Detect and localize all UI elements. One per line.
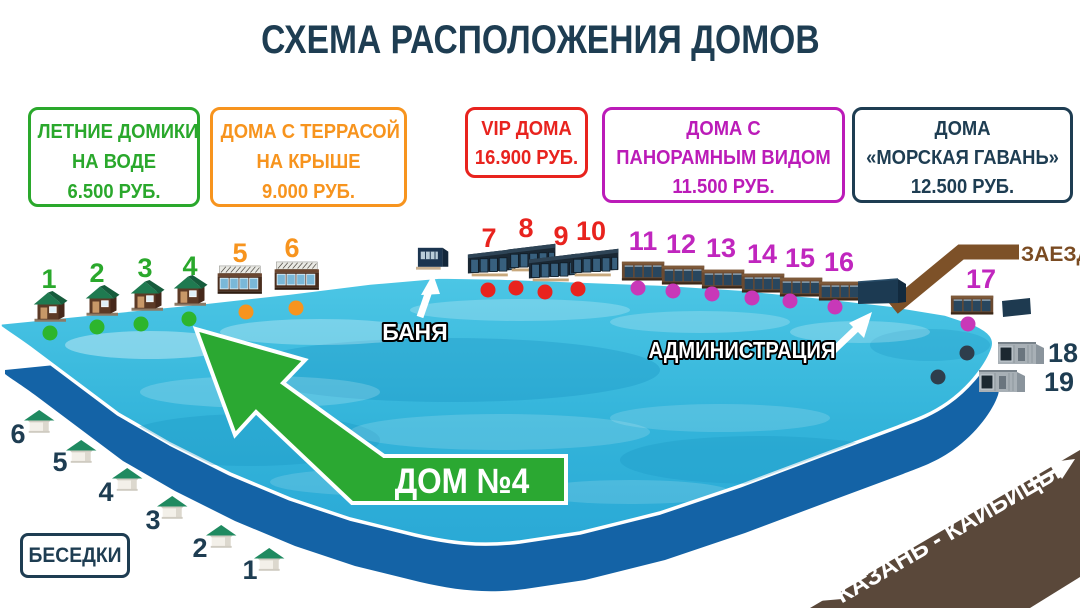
- legend-line: ДОМА С: [614, 115, 832, 144]
- legend-line: ПАНОРАМНЫМ ВИДОМ: [614, 144, 832, 173]
- legend-line: НА ВОДЕ: [38, 147, 191, 177]
- legend-price: 16.900 РУБ.: [473, 144, 581, 173]
- gazebo-4: [112, 468, 142, 491]
- gazebo-1: [254, 548, 284, 571]
- legend-line: VIP ДОМА: [473, 115, 581, 144]
- house-16-panoramic: [819, 282, 861, 301]
- legend-price: 6.500 РУБ.: [38, 177, 191, 207]
- house-5-terrace: [218, 266, 262, 294]
- house-3-summer-cabin: [131, 280, 165, 311]
- gazebos-label: БЕСЕДКИ: [27, 536, 123, 575]
- administration-building: [858, 279, 906, 304]
- gazebos-label-box: БЕСЕДКИ: [20, 533, 130, 578]
- house-number-19: 19: [1044, 367, 1074, 397]
- legend-price: 9.000 РУБ.: [221, 177, 397, 207]
- house-18-container: [998, 342, 1044, 364]
- administration-label: АДМИНИСТРАЦИЯ: [649, 337, 836, 364]
- gazebo-6: [24, 410, 54, 433]
- house-number-13: 13: [706, 233, 736, 263]
- legend-price: 11.500 РУБ.: [614, 173, 832, 202]
- house-6-terrace: [275, 262, 319, 290]
- house-number-6: 6: [284, 233, 299, 263]
- legend-box-harbor-houses: ДОМА «МОРСКАЯ ГАВАНЬ» 12.500 РУБ.: [852, 107, 1073, 203]
- house-10-vip: [571, 249, 619, 277]
- house-2-summer-cabin: [86, 285, 120, 316]
- gazebo-number-6: 6: [10, 419, 25, 449]
- house-number-2: 2: [89, 258, 104, 288]
- gazebo-2: [206, 525, 236, 548]
- gazebo-3: [157, 496, 187, 519]
- gazebo-number-4: 4: [98, 477, 113, 507]
- gazebo-number-3: 3: [145, 505, 160, 535]
- gazebo-number-2: 2: [192, 533, 207, 563]
- legend-line: ЛЕТНИЕ ДОМИКИ: [38, 117, 191, 147]
- bathhouse-building: [416, 248, 448, 270]
- house-number-18: 18: [1048, 338, 1078, 368]
- gazebo-5: [66, 440, 96, 463]
- house-number-10: 10: [576, 216, 606, 246]
- legend-box-panoramic-houses: ДОМА С ПАНОРАМНЫМ ВИДОМ 11.500 РУБ.: [602, 107, 845, 203]
- house-number-5: 5: [232, 238, 247, 268]
- gazebo-number-1: 1: [242, 555, 257, 585]
- house-14-panoramic: [742, 274, 784, 293]
- house-number-14: 14: [747, 239, 777, 269]
- house-number-15: 15: [785, 243, 815, 273]
- bathhouse-label: БАНЯ: [382, 319, 447, 345]
- resort-map: ЗАЕЗД ДОРОГА КАЗАНЬ - КАЙБИЦЫ ДОМ №4: [0, 0, 1080, 608]
- legend-line: НА КРЫШЕ: [221, 147, 397, 177]
- house-number-1: 1: [41, 264, 56, 294]
- legend-box-vip-houses: VIP ДОМА 16.900 РУБ.: [465, 107, 588, 178]
- dark-panel-building: [1002, 298, 1031, 317]
- house-1-summer-cabin: [34, 291, 68, 322]
- legend-box-summer-houses: ЛЕТНИЕ ДОМИКИ НА ВОДЕ 6.500 РУБ.: [28, 107, 200, 207]
- house-number-9: 9: [553, 221, 568, 251]
- gazebo-number-5: 5: [52, 447, 67, 477]
- house4-callout-label: ДОМ №4: [395, 463, 530, 502]
- house-number-7: 7: [481, 223, 496, 253]
- house-number-16: 16: [824, 247, 854, 277]
- page-title: СХЕМА РАСПОЛОЖЕНИЯ ДОМОВ: [0, 18, 1080, 63]
- house-number-8: 8: [518, 213, 533, 243]
- house-15-panoramic: [780, 278, 822, 297]
- house-number-4: 4: [182, 251, 197, 281]
- house-17-panoramic: [951, 296, 993, 315]
- legend-price: 12.500 РУБ.: [864, 173, 1062, 202]
- house-number-3: 3: [137, 253, 152, 283]
- house-number-12: 12: [666, 229, 696, 259]
- legend-line: «МОРСКАЯ ГАВАНЬ»: [864, 144, 1062, 173]
- house-19-container: [979, 370, 1025, 392]
- house-number-17: 17: [966, 264, 996, 294]
- house-11-panoramic: [622, 262, 664, 281]
- house-12-panoramic: [662, 266, 704, 285]
- entrance-label: ЗАЕЗД: [1021, 243, 1080, 266]
- house-number-11: 11: [629, 226, 658, 256]
- legend-line: ДОМА С ТЕРРАСОЙ: [221, 117, 397, 147]
- legend-box-terrace-houses: ДОМА С ТЕРРАСОЙ НА КРЫШЕ 9.000 РУБ.: [210, 107, 407, 207]
- house-13-panoramic: [702, 270, 744, 289]
- legend-line: ДОМА: [864, 115, 1062, 144]
